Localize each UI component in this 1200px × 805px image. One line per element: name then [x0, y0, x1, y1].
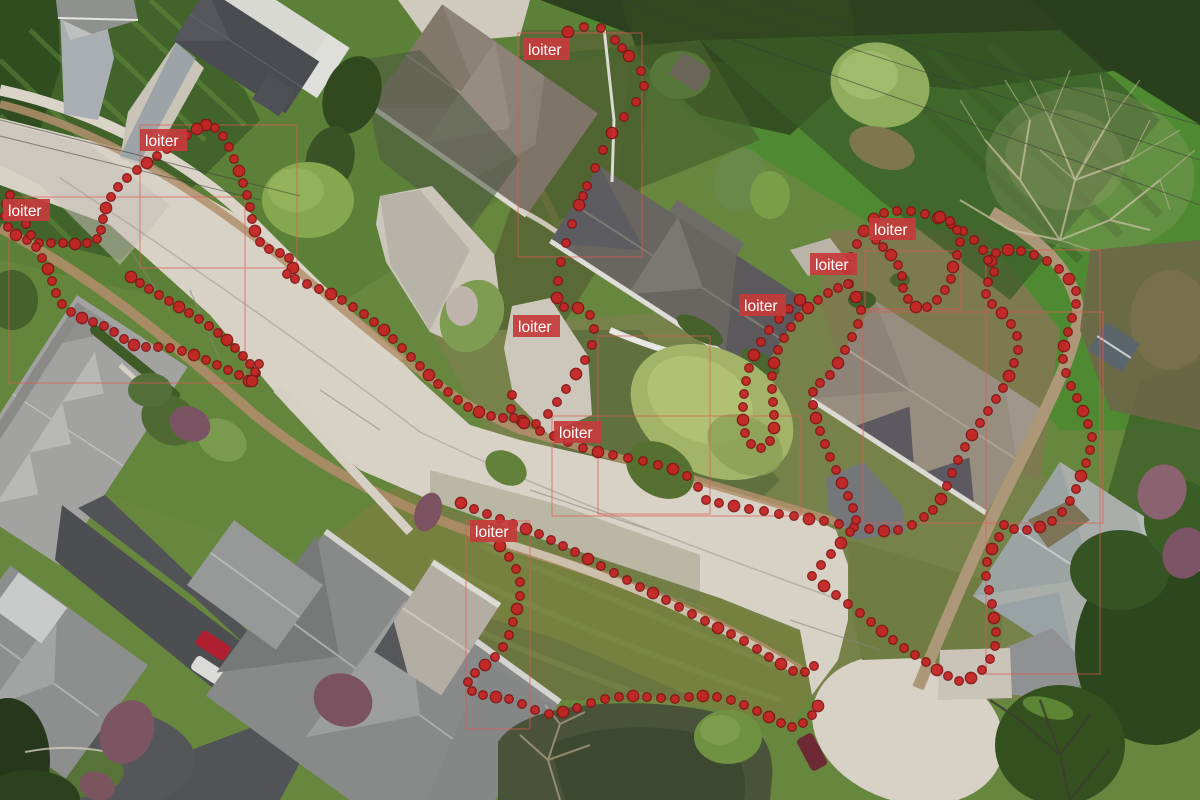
svg-text:loiter: loiter: [874, 222, 908, 239]
svg-text:loiter: loiter: [559, 425, 593, 442]
svg-text:loiter: loiter: [518, 319, 552, 336]
svg-text:loiter: loiter: [815, 257, 849, 274]
svg-text:loiter: loiter: [145, 133, 179, 150]
svg-text:loiter: loiter: [475, 524, 509, 541]
svg-text:loiter: loiter: [744, 298, 778, 315]
svg-text:loiter: loiter: [528, 42, 562, 59]
svg-text:loiter: loiter: [8, 203, 42, 220]
